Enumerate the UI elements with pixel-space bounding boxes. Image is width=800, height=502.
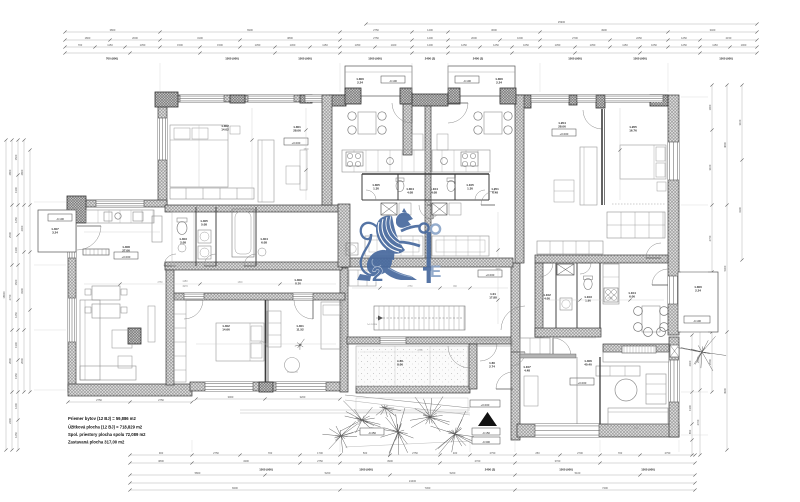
svg-text:Úžitková plocha (12 BJ) = 718,: Úžitková plocha (12 BJ) = 718,829 m2: [68, 425, 143, 430]
svg-text:6.08: 6.08: [261, 241, 267, 245]
svg-text:-0.100: -0.100: [389, 79, 397, 83]
svg-text:2700: 2700: [577, 451, 583, 455]
svg-text:2800: 2800: [20, 169, 24, 175]
svg-text:1150: 1150: [107, 43, 113, 47]
svg-text:5200: 5200: [450, 471, 456, 475]
svg-text:16600: 16600: [2, 291, 6, 299]
svg-text:3600: 3600: [491, 28, 497, 32]
svg-text:2700: 2700: [696, 419, 700, 425]
svg-text:4100: 4100: [738, 207, 742, 213]
svg-text:1350: 1350: [14, 373, 18, 379]
svg-text:+0.000: +0.000: [560, 132, 569, 136]
svg-text:+0.000: +0.000: [292, 141, 301, 145]
svg-text:3700: 3700: [555, 459, 561, 463]
svg-text:700: 700: [268, 451, 273, 455]
svg-text:4.08: 4.08: [431, 191, 437, 195]
svg-text:2400 (2): 2400 (2): [473, 57, 483, 61]
svg-text:2400 (2): 2400 (2): [425, 57, 435, 61]
svg-text:5100: 5100: [575, 471, 581, 475]
svg-text:5300: 5300: [723, 265, 727, 271]
svg-text:24400: 24400: [409, 479, 417, 483]
svg-text:1350: 1350: [355, 43, 361, 47]
svg-text:2.08: 2.08: [180, 241, 186, 245]
svg-text:1970: 1970: [182, 285, 188, 288]
svg-text:1250: 1250: [14, 312, 18, 318]
svg-text:28.06: 28.06: [558, 125, 566, 129]
svg-text:1150: 1150: [182, 280, 188, 283]
svg-text:1500: 1500: [14, 279, 18, 285]
svg-text:11.52: 11.52: [296, 328, 304, 332]
svg-text:4.48: 4.48: [524, 369, 530, 373]
svg-text:7400: 7400: [602, 486, 608, 490]
svg-text:2750: 2750: [407, 286, 413, 288]
svg-text:2000: 2000: [471, 36, 477, 40]
svg-text:2750: 2750: [158, 398, 164, 402]
svg-text:17.88: 17.88: [489, 296, 497, 300]
svg-text:3800: 3800: [303, 149, 309, 151]
svg-text:700 (900): 700 (900): [106, 57, 118, 61]
svg-text:2750: 2750: [157, 282, 163, 284]
svg-text:2150: 2150: [726, 36, 732, 40]
svg-text:5800: 5800: [195, 471, 201, 475]
svg-text:2000: 2000: [20, 225, 24, 231]
svg-text:1500 (900): 1500 (900): [298, 57, 312, 61]
svg-text:3100: 3100: [708, 164, 712, 170]
svg-text:1000: 1000: [741, 43, 747, 47]
svg-text:2750: 2750: [412, 451, 418, 455]
svg-text:1500 (900): 1500 (900): [633, 57, 647, 61]
svg-text:2.24: 2.24: [496, 81, 502, 85]
svg-text:Priemer bytov (12 BJ) = 59,886: Priemer bytov (12 BJ) = 59,886 m2: [68, 416, 137, 421]
svg-text:500: 500: [363, 451, 368, 455]
svg-text:1350: 1350: [590, 43, 596, 47]
svg-text:1250: 1250: [14, 432, 18, 438]
svg-text:1400: 1400: [427, 28, 433, 32]
svg-text:3100: 3100: [738, 119, 742, 125]
svg-text:3.24: 3.24: [52, 231, 58, 235]
svg-text:1300: 1300: [290, 43, 296, 47]
svg-text:1500: 1500: [177, 43, 183, 47]
svg-text:700: 700: [78, 43, 83, 47]
svg-text:1050: 1050: [523, 43, 529, 47]
svg-text:7300: 7300: [425, 486, 431, 490]
svg-text:1500: 1500: [217, 43, 223, 47]
svg-text:1.30: 1.30: [373, 187, 379, 191]
svg-text:4900: 4900: [601, 28, 607, 32]
svg-text:-0.100: -0.100: [56, 217, 64, 221]
svg-text:2700: 2700: [607, 298, 613, 300]
svg-text:-0.450: -0.450: [368, 431, 376, 435]
svg-text:2400: 2400: [633, 428, 639, 430]
svg-text:900: 900: [159, 451, 164, 455]
svg-text:2400 (2): 2400 (2): [485, 468, 495, 472]
svg-text:6900: 6900: [247, 28, 253, 32]
svg-text:E: E: [430, 262, 441, 281]
svg-text:2700: 2700: [572, 36, 578, 40]
svg-text:1350: 1350: [555, 43, 561, 47]
svg-text:1800: 1800: [85, 36, 91, 40]
svg-text:2750: 2750: [373, 28, 379, 32]
svg-text:8400: 8400: [232, 486, 238, 490]
svg-text:1150: 1150: [712, 43, 718, 47]
svg-text:650: 650: [688, 429, 692, 434]
svg-text:25900: 25900: [558, 20, 566, 24]
svg-text:3800: 3800: [287, 36, 293, 40]
svg-text:+0.000: +0.000: [486, 273, 495, 277]
svg-text:1400: 1400: [391, 43, 397, 47]
svg-text:1600: 1600: [517, 36, 523, 40]
svg-text:1400: 1400: [427, 43, 433, 47]
svg-text:1.90: 1.90: [585, 299, 591, 303]
svg-text:40.40: 40.40: [584, 363, 592, 367]
svg-text:1900: 1900: [708, 104, 712, 110]
svg-text:+0.000: +0.000: [578, 381, 587, 385]
svg-text:1350: 1350: [255, 43, 261, 47]
svg-text:1400: 1400: [427, 36, 433, 40]
svg-text:-0.150: -0.150: [482, 431, 490, 435]
svg-text:2.24: 2.24: [357, 81, 363, 85]
svg-text:1250: 1250: [681, 43, 687, 47]
svg-text:3800: 3800: [110, 28, 116, 32]
svg-text:2750: 2750: [96, 398, 102, 402]
svg-text:1500 (900): 1500 (900): [719, 57, 733, 61]
svg-text:28.06: 28.06: [293, 129, 301, 133]
svg-text:Spol. priestory plocha spolu 7: Spol. priestory plocha spolu 72,089 m2: [68, 432, 146, 437]
svg-text:1.30: 1.30: [467, 187, 473, 191]
svg-text:2: 2: [372, 264, 383, 286]
svg-text:2600: 2600: [20, 358, 24, 364]
svg-text:400: 400: [453, 451, 458, 455]
svg-text:1150: 1150: [622, 43, 628, 47]
svg-text:1300: 1300: [14, 342, 18, 348]
svg-text:-0.100: -0.100: [693, 319, 701, 323]
svg-text:4900: 4900: [723, 388, 727, 394]
svg-text:2750: 2750: [708, 235, 712, 241]
svg-text:1250: 1250: [493, 43, 499, 47]
svg-text:2400: 2400: [688, 360, 692, 366]
svg-text:1700: 1700: [317, 451, 323, 455]
svg-text:-0.300: -0.300: [482, 440, 490, 444]
svg-text:1250: 1250: [14, 217, 18, 223]
svg-text:1500 (900): 1500 (900): [225, 57, 239, 61]
svg-text:1250: 1250: [681, 36, 687, 40]
svg-text:1250: 1250: [461, 43, 467, 47]
svg-text:3900: 3900: [387, 459, 393, 463]
svg-text:1300: 1300: [688, 405, 692, 411]
svg-text:-0.100: -0.100: [463, 79, 471, 83]
svg-text:3100: 3100: [197, 36, 203, 40]
svg-text:1800: 1800: [237, 282, 243, 284]
svg-text:1500 (900): 1500 (900): [259, 468, 273, 472]
svg-text:3300: 3300: [20, 288, 24, 294]
svg-text:1500 (900): 1500 (900): [368, 57, 382, 61]
svg-text:1150: 1150: [322, 43, 328, 47]
svg-text:5.08: 5.08: [201, 223, 207, 227]
svg-text:2700: 2700: [475, 459, 481, 463]
svg-text:1300: 1300: [14, 247, 18, 253]
svg-text:6.06: 6.06: [629, 295, 635, 299]
svg-text:1500 (900): 1500 (900): [568, 57, 582, 61]
svg-text:2750: 2750: [317, 459, 323, 463]
svg-text:14.66: 14.66: [222, 328, 230, 332]
svg-text:4600: 4600: [723, 142, 727, 148]
svg-text:3000: 3000: [228, 395, 234, 399]
svg-text:1500 (900): 1500 (900): [641, 468, 655, 472]
svg-text:+0.000: +0.000: [481, 403, 490, 407]
svg-text:14.02: 14.02: [221, 128, 229, 132]
svg-text:700: 700: [618, 451, 623, 455]
svg-text:2000: 2000: [132, 36, 138, 40]
svg-text:3200: 3200: [300, 395, 306, 399]
svg-text:2800: 2800: [8, 169, 12, 175]
svg-text:1500 (900): 1500 (900): [559, 468, 573, 472]
svg-text:2750: 2750: [213, 451, 219, 455]
svg-text:2750: 2750: [490, 451, 496, 455]
svg-text:1500 (900): 1500 (900): [359, 468, 373, 472]
svg-text:2500: 2500: [8, 232, 12, 238]
svg-text:2.24: 2.24: [695, 289, 701, 293]
svg-text:2250: 2250: [636, 36, 642, 40]
svg-text:1300: 1300: [14, 187, 18, 193]
svg-text:1200: 1200: [14, 403, 18, 409]
svg-text:2400: 2400: [8, 418, 12, 424]
svg-text:1350: 1350: [140, 43, 146, 47]
svg-text:8.30: 8.30: [295, 282, 301, 286]
svg-text:Zastavaná plocha 317,00 m2: Zastavaná plocha 317,00 m2: [68, 440, 125, 445]
svg-text:1050: 1050: [651, 43, 657, 47]
svg-text:4300: 4300: [243, 459, 249, 463]
svg-text:8.06: 8.06: [397, 363, 403, 367]
svg-text:3400: 3400: [710, 28, 716, 32]
svg-text:2750: 2750: [373, 36, 379, 40]
svg-text:4.08: 4.08: [407, 191, 413, 195]
svg-text:2750: 2750: [665, 451, 671, 455]
svg-text:7x170/286: 7x170/286: [367, 324, 378, 326]
svg-text:+0.000: +0.000: [122, 255, 131, 259]
svg-text:2.74: 2.74: [489, 365, 495, 369]
svg-text:250: 250: [535, 451, 540, 455]
svg-text:5200: 5200: [325, 471, 331, 475]
svg-text:2750: 2750: [8, 294, 12, 300]
svg-text:2750: 2750: [259, 342, 265, 344]
svg-text:16.76: 16.76: [629, 129, 637, 133]
svg-text:3400: 3400: [495, 269, 501, 271]
svg-text:3800: 3800: [158, 459, 164, 463]
svg-text:1500: 1500: [14, 154, 18, 160]
svg-text:2750: 2750: [417, 350, 423, 352]
svg-text:2600: 2600: [8, 358, 12, 364]
